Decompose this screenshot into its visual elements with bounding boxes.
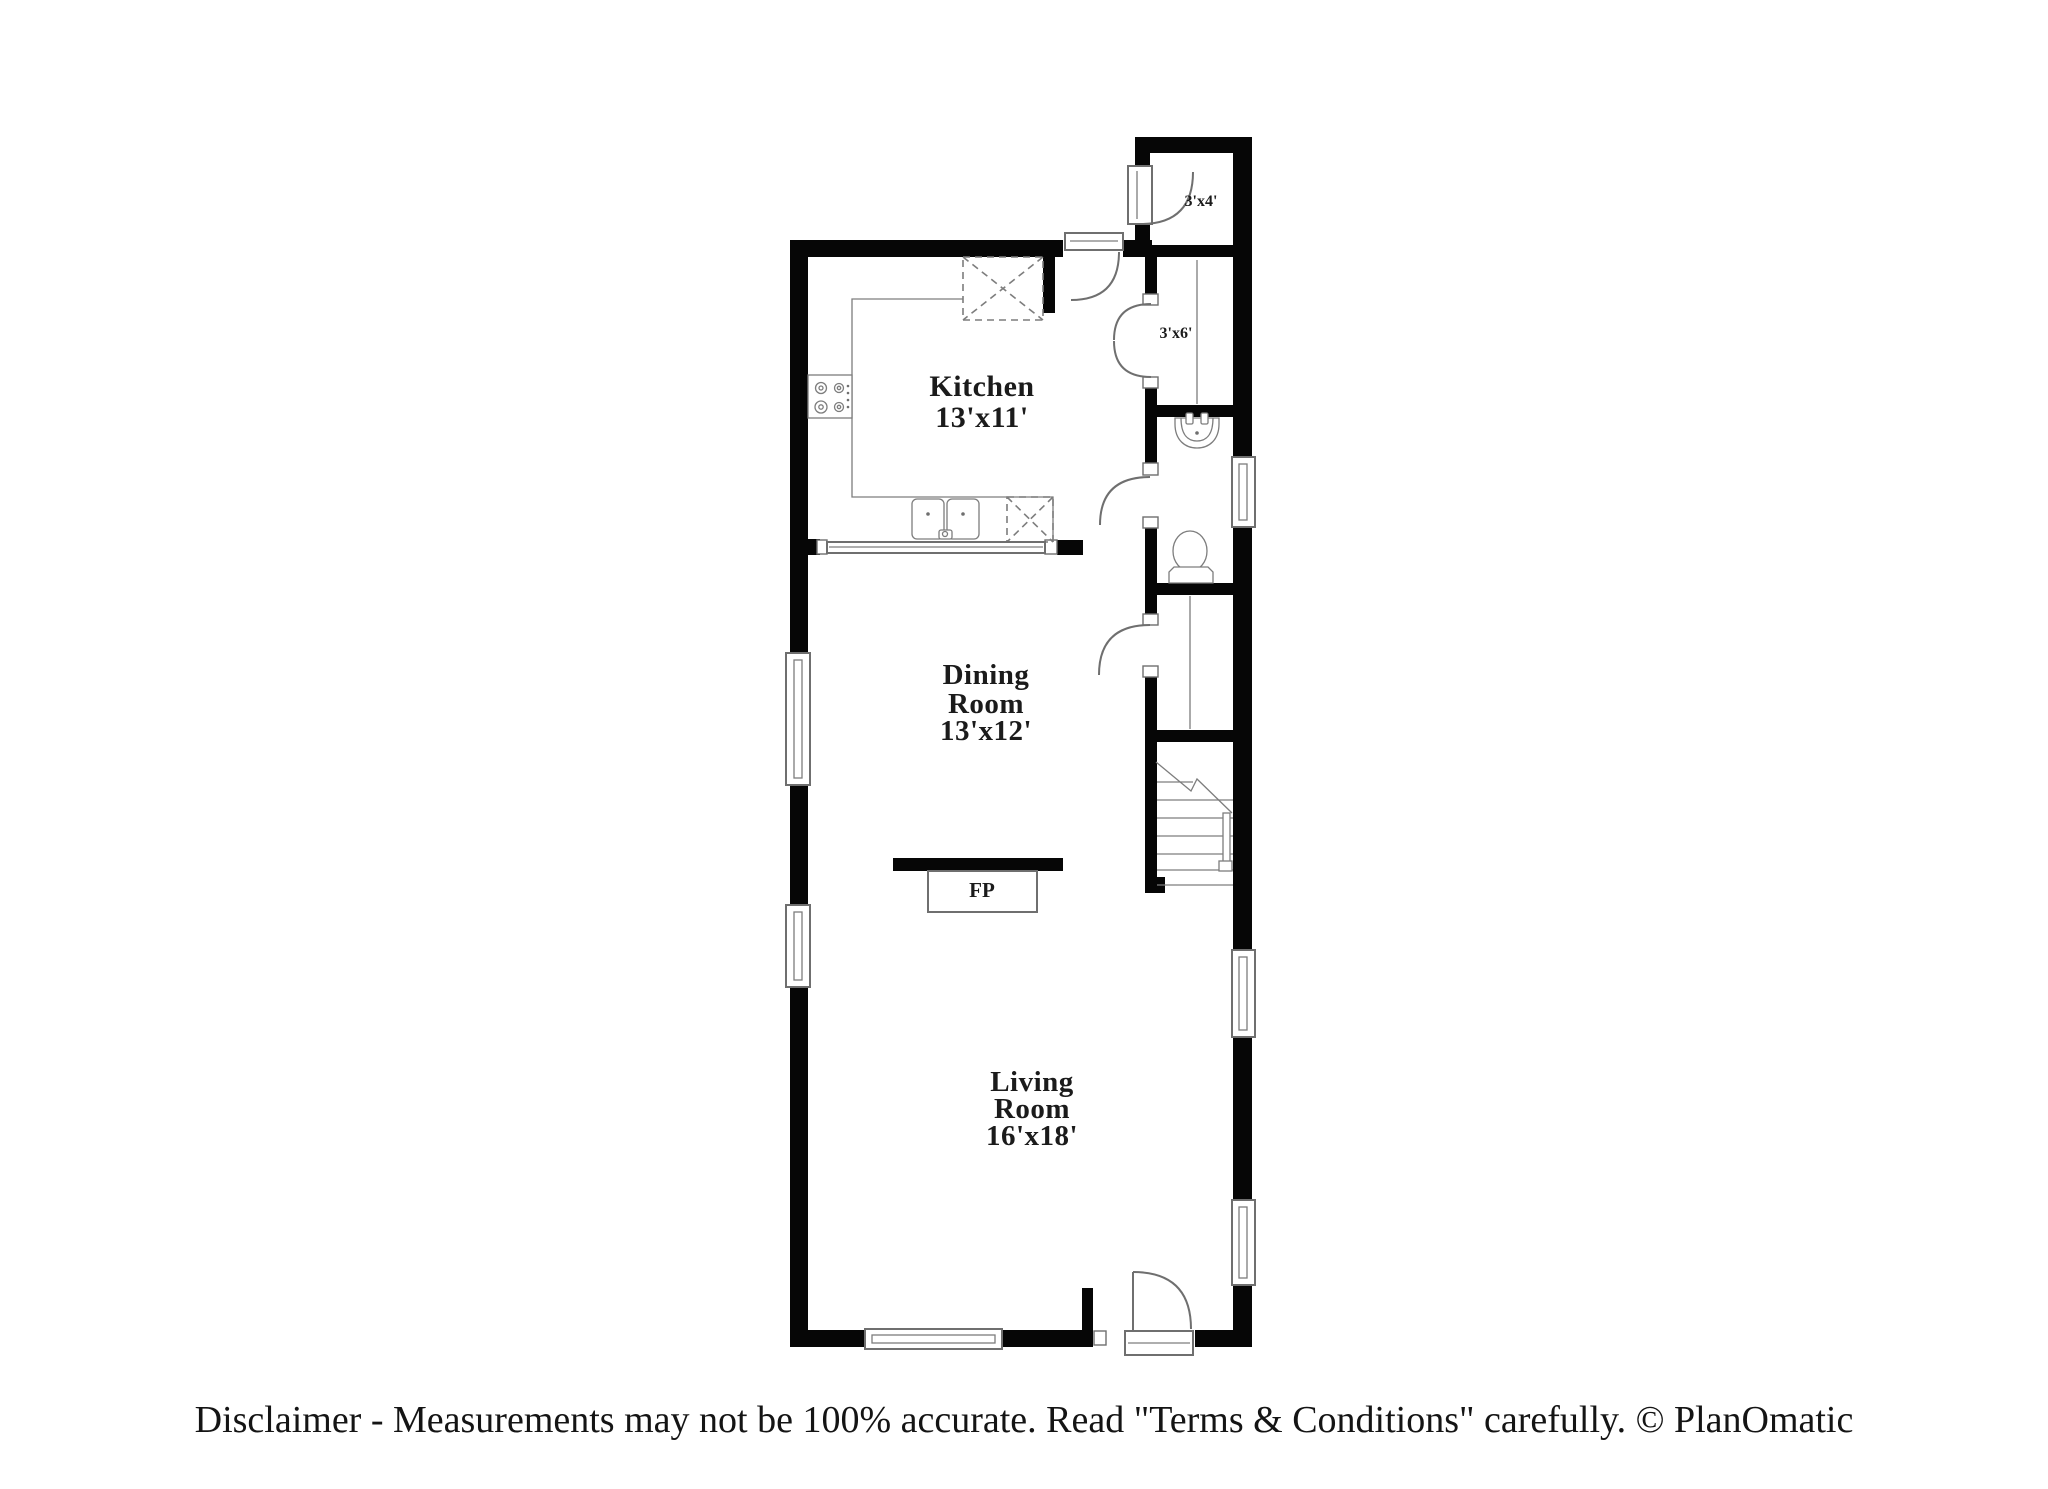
- bottom-wall-right: [1195, 1330, 1252, 1347]
- front-door-swing-arc: [1133, 1272, 1191, 1329]
- front-door: [1125, 1272, 1193, 1355]
- closet-hall-doors: [1114, 304, 1151, 377]
- hall-wall-1: [1145, 257, 1157, 297]
- stairs-break-line: [1156, 762, 1232, 813]
- closet-top-bottom-wall: [1152, 245, 1233, 257]
- kitchen-top-wall: [790, 240, 1063, 257]
- bottom-wall-mid: [1002, 1330, 1093, 1347]
- refrigerator-icon: [963, 257, 1043, 320]
- disclaimer-text: Disclaimer - Measurements may not be 100…: [0, 1398, 2048, 1442]
- closet-top-dims: 3'x4': [1185, 193, 1218, 210]
- bar-stub-right: [1057, 540, 1083, 555]
- stairs-handrail: [1223, 813, 1230, 865]
- door-jambs: [817, 294, 1158, 1345]
- window-bottom: [865, 1329, 1002, 1349]
- back-door: [1065, 233, 1123, 300]
- dishwasher-icon: [1007, 497, 1053, 542]
- bathroom-bottom-wall: [1152, 583, 1233, 595]
- right-wall: [1233, 137, 1252, 1347]
- kitchen-dims: 13'x11': [935, 401, 1029, 434]
- dining-room-label-line1: Dining: [943, 659, 1030, 691]
- window-left-lower: [786, 905, 810, 987]
- window-left-upper: [786, 653, 810, 785]
- breakfast-bar: [827, 542, 1045, 553]
- fireplace-label: FP: [969, 878, 995, 902]
- room-labels: Kitchen 13'x11' Dining Room 13'x12' Livi…: [929, 193, 1217, 1152]
- kitchen-label: Kitchen: [929, 370, 1034, 403]
- stairwell-top-wall: [1152, 730, 1233, 742]
- fireplace-wall: [893, 858, 1063, 871]
- kitchen-sink-icon: [912, 499, 979, 539]
- stairs-newel-post: [1219, 861, 1232, 871]
- hall-wall-3: [1145, 527, 1157, 615]
- left-wall: [790, 240, 808, 1347]
- stairs-icon: [1156, 762, 1233, 885]
- closet-hall-dims: 3'x6': [1160, 325, 1193, 342]
- window-right-upper: [1232, 950, 1255, 1037]
- floor-plan-drawing: FP Kitchen 13'x11' Dining Room 13'x12' L…: [0, 0, 2048, 1489]
- bathroom-sink-icon: [1175, 413, 1219, 448]
- closet-hall-door-arc-upper: [1114, 304, 1151, 340]
- fridge-wall-stub: [1043, 255, 1055, 313]
- dining-room-dims: 13'x12': [940, 715, 1032, 747]
- top-junction-wall: [1123, 240, 1152, 257]
- fireplace: FP: [928, 871, 1037, 912]
- closet-hall-door-arc-lower: [1114, 341, 1151, 377]
- hall-wall-2: [1145, 385, 1157, 463]
- bottom-wall-left: [790, 1330, 865, 1347]
- floor-plan: FP Kitchen 13'x11' Dining Room 13'x12' L…: [0, 0, 2048, 1489]
- living-room-dims: 16'x18': [986, 1120, 1078, 1152]
- toilet-icon: [1169, 531, 1213, 583]
- closet-top-door: [1128, 166, 1193, 224]
- stove-icon: [808, 375, 852, 418]
- hall-wall-4: [1145, 677, 1157, 877]
- window-bathroom: [1232, 457, 1255, 527]
- window-right-lower: [1232, 1200, 1255, 1285]
- back-door-swing-arc: [1071, 252, 1119, 300]
- entry-wall-stub: [1082, 1288, 1093, 1332]
